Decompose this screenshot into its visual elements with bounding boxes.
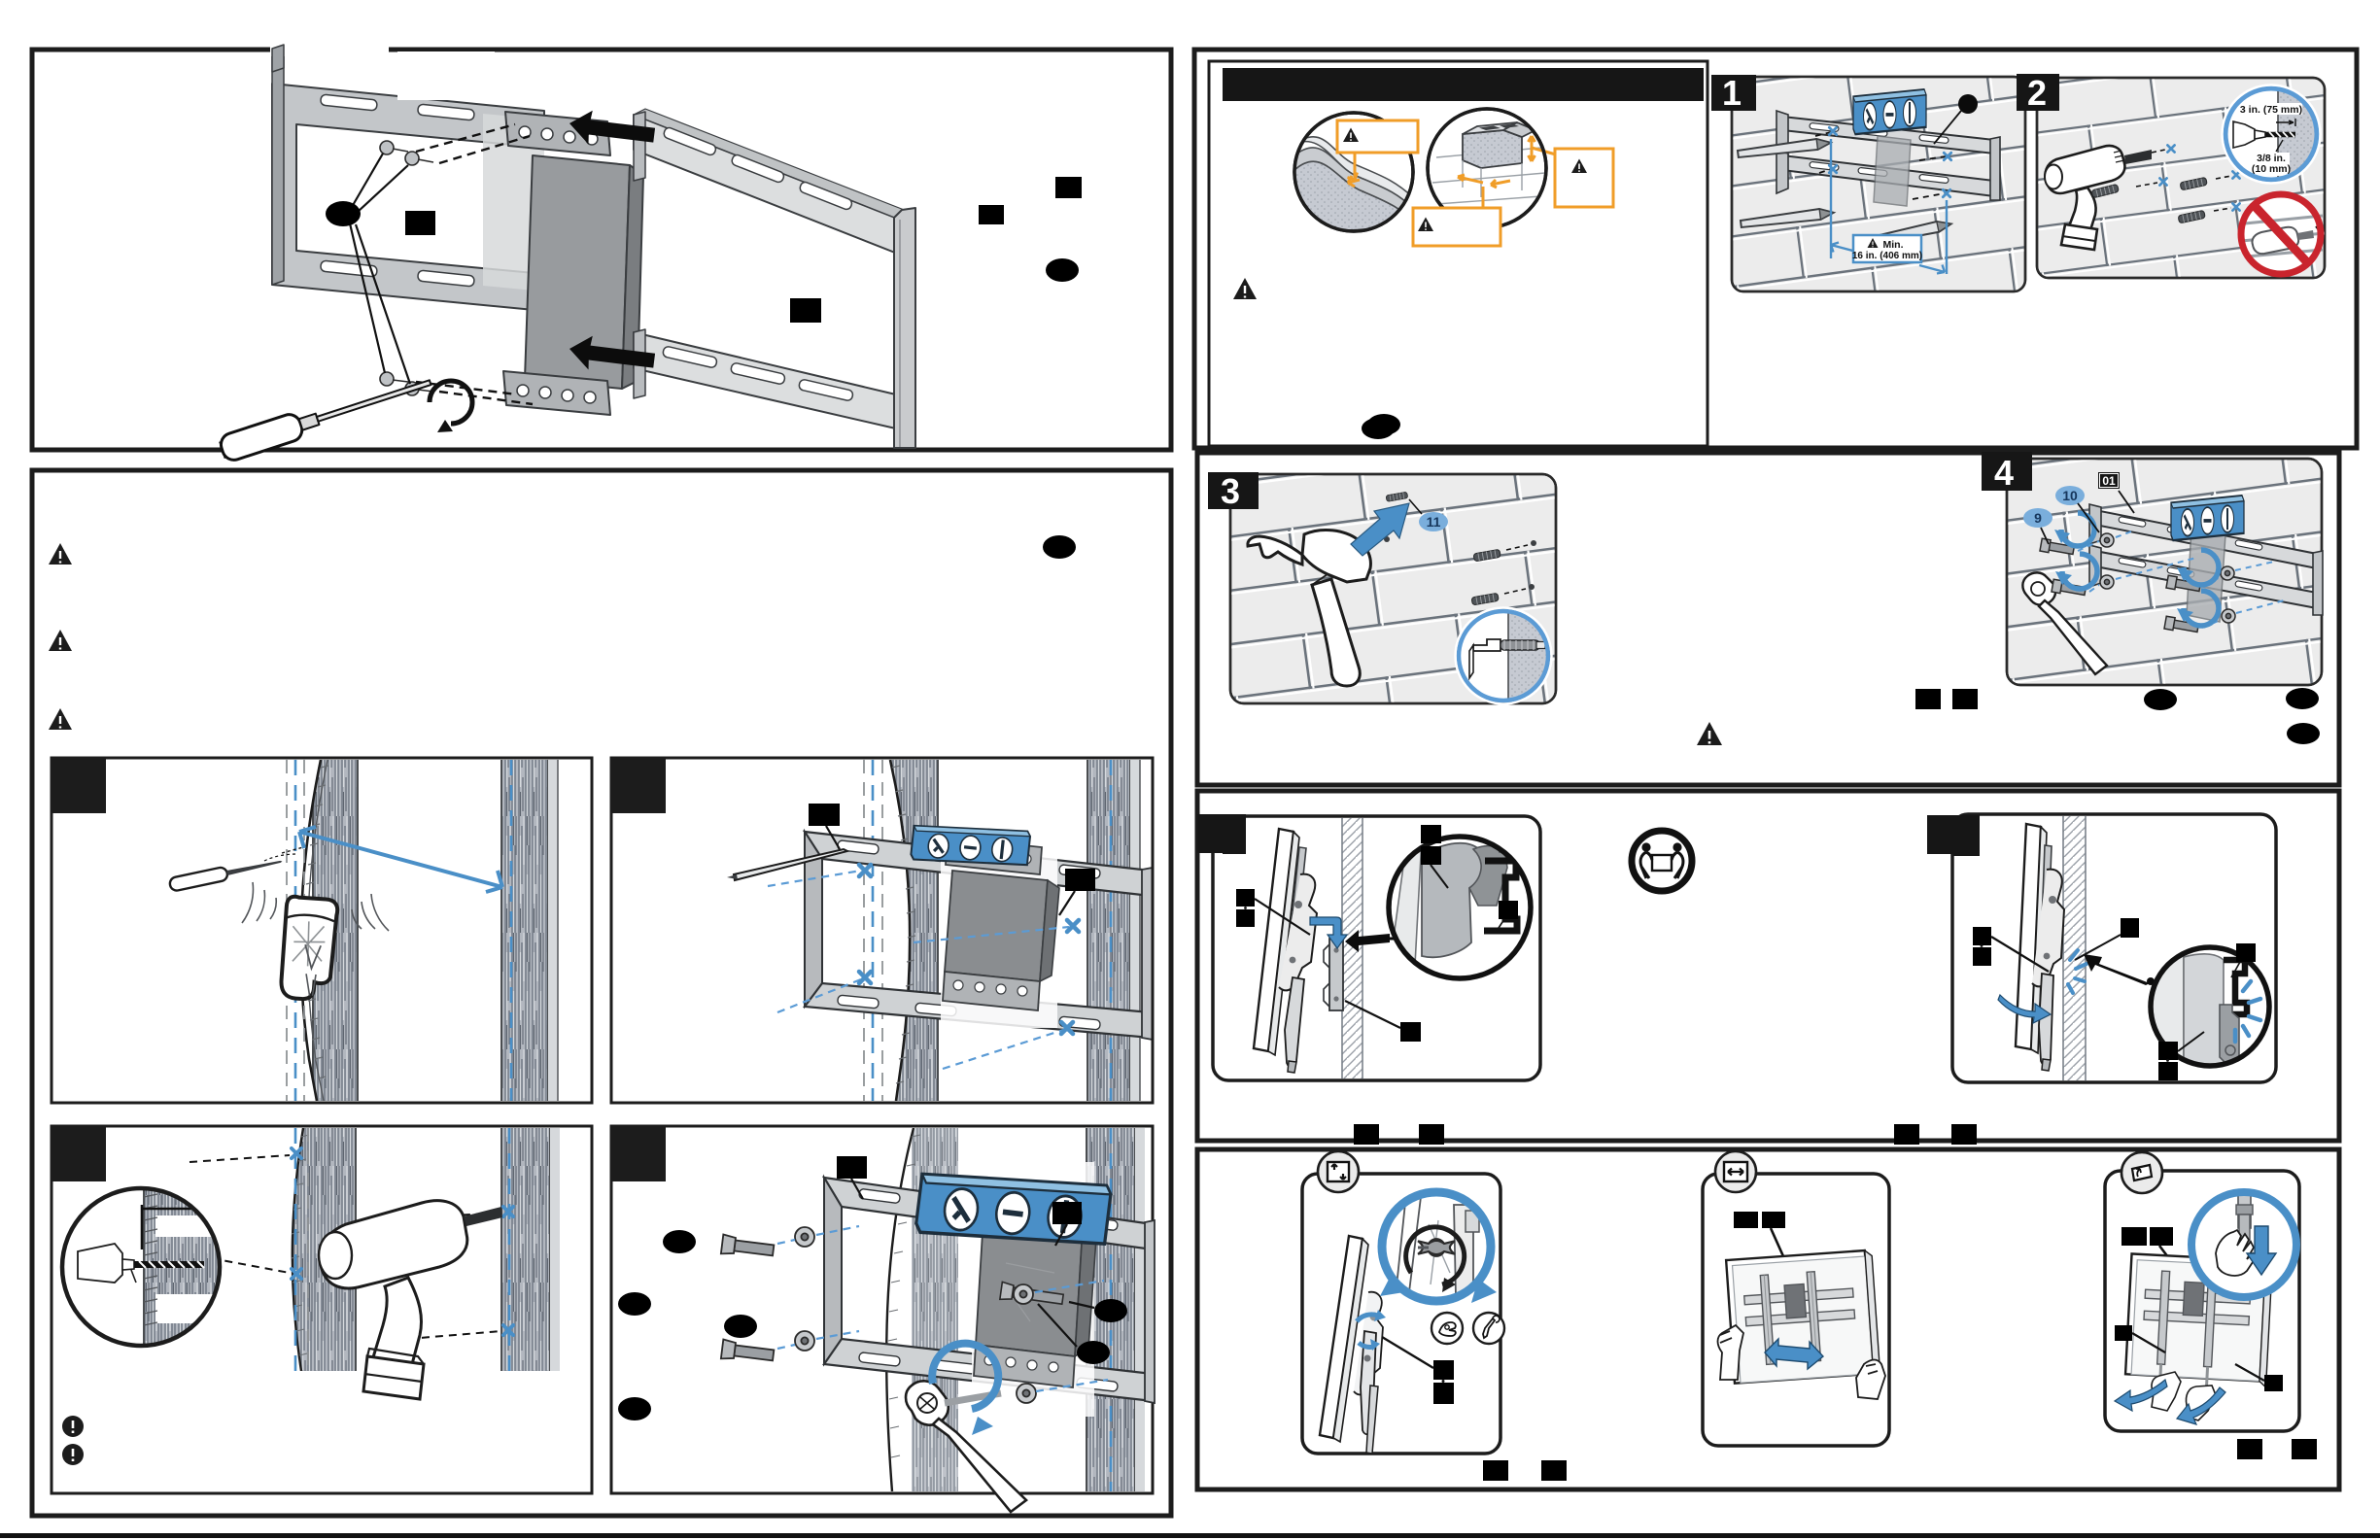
svg-text:3 in. (75 mm): 3 in. (75 mm)	[2240, 104, 2302, 116]
svg-text:11: 11	[1427, 514, 1441, 530]
svg-text:10: 10	[2062, 488, 2078, 503]
svg-text:4: 4	[1994, 453, 2014, 493]
svg-text:2: 2	[2027, 73, 2047, 113]
svg-text:3: 3	[1221, 471, 1240, 511]
svg-text:16 in. (406 mm): 16 in. (406 mm)	[1852, 251, 1922, 261]
svg-text:01: 01	[2102, 474, 2116, 488]
svg-text:(10 mm): (10 mm)	[2252, 163, 2291, 175]
svg-text:9: 9	[2034, 510, 2042, 526]
svg-text:Min.: Min.	[1883, 239, 1904, 251]
svg-text:1: 1	[1722, 73, 1742, 113]
